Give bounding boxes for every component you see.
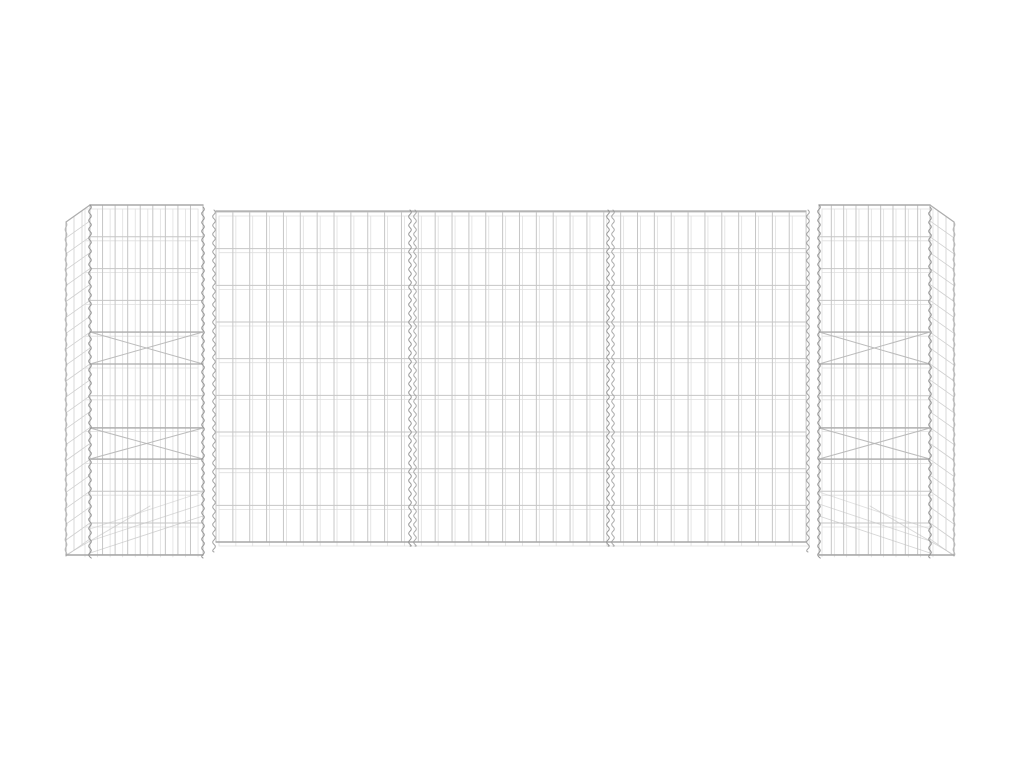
wall-divider-spiral bbox=[612, 210, 615, 546]
wall-divider-spiral bbox=[409, 210, 412, 546]
wall-back-mesh bbox=[219, 216, 809, 546]
gabion-structure bbox=[0, 0, 1024, 768]
right-tower-side-mesh bbox=[930, 205, 954, 556]
right-tower-front-mesh bbox=[819, 205, 930, 555]
right-tower-floor-wire bbox=[819, 516, 930, 553]
left-tower-side-top-rim bbox=[66, 205, 90, 222]
right-tower-back-mesh bbox=[822, 209, 933, 557]
wall-front-mesh bbox=[216, 212, 806, 542]
right-tower-floor-edge bbox=[870, 506, 954, 555]
product-photo-canvas bbox=[0, 0, 1024, 768]
left-tower-back-mesh bbox=[85, 209, 198, 557]
wall-divider-spiral bbox=[414, 210, 417, 546]
left-tower-floor-edge bbox=[66, 506, 150, 555]
left-tower-side-mesh bbox=[66, 205, 90, 556]
left-tower-floor-wire bbox=[90, 516, 203, 553]
left-junction-spiral bbox=[213, 210, 216, 552]
left-tower-front-mesh bbox=[90, 205, 203, 555]
right-tower-side-top-rim bbox=[930, 205, 954, 222]
